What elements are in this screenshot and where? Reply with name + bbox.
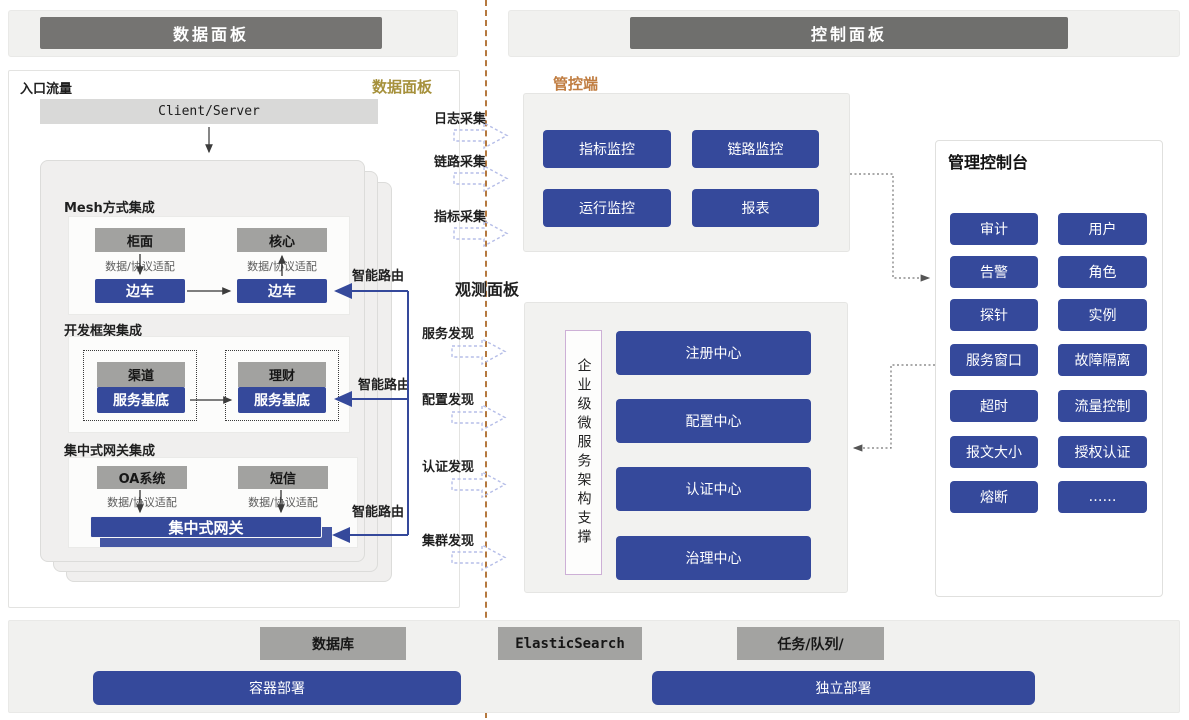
console-button-more: …… [1058, 481, 1147, 513]
task-queue-box: 任务/队列/ [737, 627, 884, 660]
smart-route-label-gateway: 智能路由 [352, 501, 404, 520]
mesh-app-left: 柜面 [95, 228, 185, 252]
console-button-flow-control: 流量控制 [1058, 390, 1147, 422]
flow-arrow-icon [450, 542, 508, 573]
governance-center-button: 治理中心 [616, 536, 811, 580]
data-plane-corner-label: 数据面板 [372, 76, 432, 97]
framework-app-left: 渠道 [97, 362, 185, 387]
mesh-section-title: Mesh方式集成 [64, 197, 155, 216]
report-button: 报表 [692, 189, 819, 227]
gateway-adapter-right: 数据/协议适配 [238, 494, 328, 510]
console-button-probe: 探针 [950, 299, 1038, 331]
standalone-deploy-bar: 独立部署 [652, 671, 1035, 705]
trace-monitor-button: 链路监控 [692, 130, 819, 168]
mesh-app-right: 核心 [237, 228, 327, 252]
architecture-diagram: 数据面板 控制面板 入口流量 数据面板 Client/Server Mesh方式… [0, 0, 1189, 720]
database-box: 数据库 [260, 627, 406, 660]
mesh-adapter-right: 数据/协议适配 [237, 258, 327, 274]
console-button-role: 角色 [1058, 256, 1147, 288]
smart-route-label-framework: 智能路由 [358, 374, 410, 393]
management-console-title: 管理控制台 [948, 149, 1028, 173]
sidecar-right: 边车 [237, 279, 327, 303]
console-button-service-window: 服务窗口 [950, 344, 1038, 376]
config-center-button: 配置中心 [616, 399, 811, 443]
flow-arrow-icon [452, 218, 510, 249]
flow-arrow-icon [452, 120, 510, 151]
central-gateway-bar: 集中式网关 [90, 516, 322, 538]
sidecar-left: 边车 [95, 279, 185, 303]
auth-center-button: 认证中心 [616, 467, 811, 511]
metric-monitor-button: 指标监控 [543, 130, 671, 168]
console-button-fault-isolation: 故障隔离 [1058, 344, 1147, 376]
gateway-app-left: OA系统 [97, 466, 187, 489]
control-end-label: 管控端 [553, 73, 598, 94]
elasticsearch-box: ElasticSearch [498, 627, 642, 660]
console-button-audit: 审计 [950, 213, 1038, 245]
console-button-message-size: 报文大小 [950, 436, 1038, 468]
console-button-circuit-break: 熔断 [950, 481, 1038, 513]
flow-arrow-icon [450, 402, 508, 433]
microservice-support-label: 企业级微服务架构支撑 [565, 330, 602, 575]
flow-arrow-icon [450, 469, 508, 500]
console-button-user: 用户 [1058, 213, 1147, 245]
service-base-left: 服务基底 [97, 387, 185, 413]
console-button-timeout: 超时 [950, 390, 1038, 422]
console-to-observe-connector [854, 365, 935, 448]
observe-panel-title: 观测面板 [455, 276, 519, 300]
registry-center-button: 注册中心 [616, 331, 811, 375]
gateway-adapter-left: 数据/协议适配 [97, 494, 187, 510]
framework-app-right: 理财 [238, 362, 326, 387]
client-server-box: Client/Server [40, 99, 378, 124]
control-plane-header: 控制面板 [630, 17, 1068, 49]
data-plane-header: 数据面板 [40, 17, 382, 49]
monitor-to-console-connector [850, 174, 929, 278]
mesh-adapter-left: 数据/协议适配 [95, 258, 185, 274]
container-deploy-bar: 容器部署 [93, 671, 461, 705]
smart-route-label-mesh: 智能路由 [352, 265, 404, 284]
flow-arrow-icon [450, 336, 508, 367]
runtime-monitor-button: 运行监控 [543, 189, 671, 227]
service-base-right: 服务基底 [238, 387, 326, 413]
entry-traffic-label: 入口流量 [20, 78, 72, 97]
flow-arrow-icon [452, 163, 510, 194]
monitor-panel [523, 93, 850, 252]
console-button-alert: 告警 [950, 256, 1038, 288]
gateway-app-right: 短信 [238, 466, 328, 489]
console-button-instance: 实例 [1058, 299, 1147, 331]
console-button-auth-cert: 授权认证 [1058, 436, 1147, 468]
